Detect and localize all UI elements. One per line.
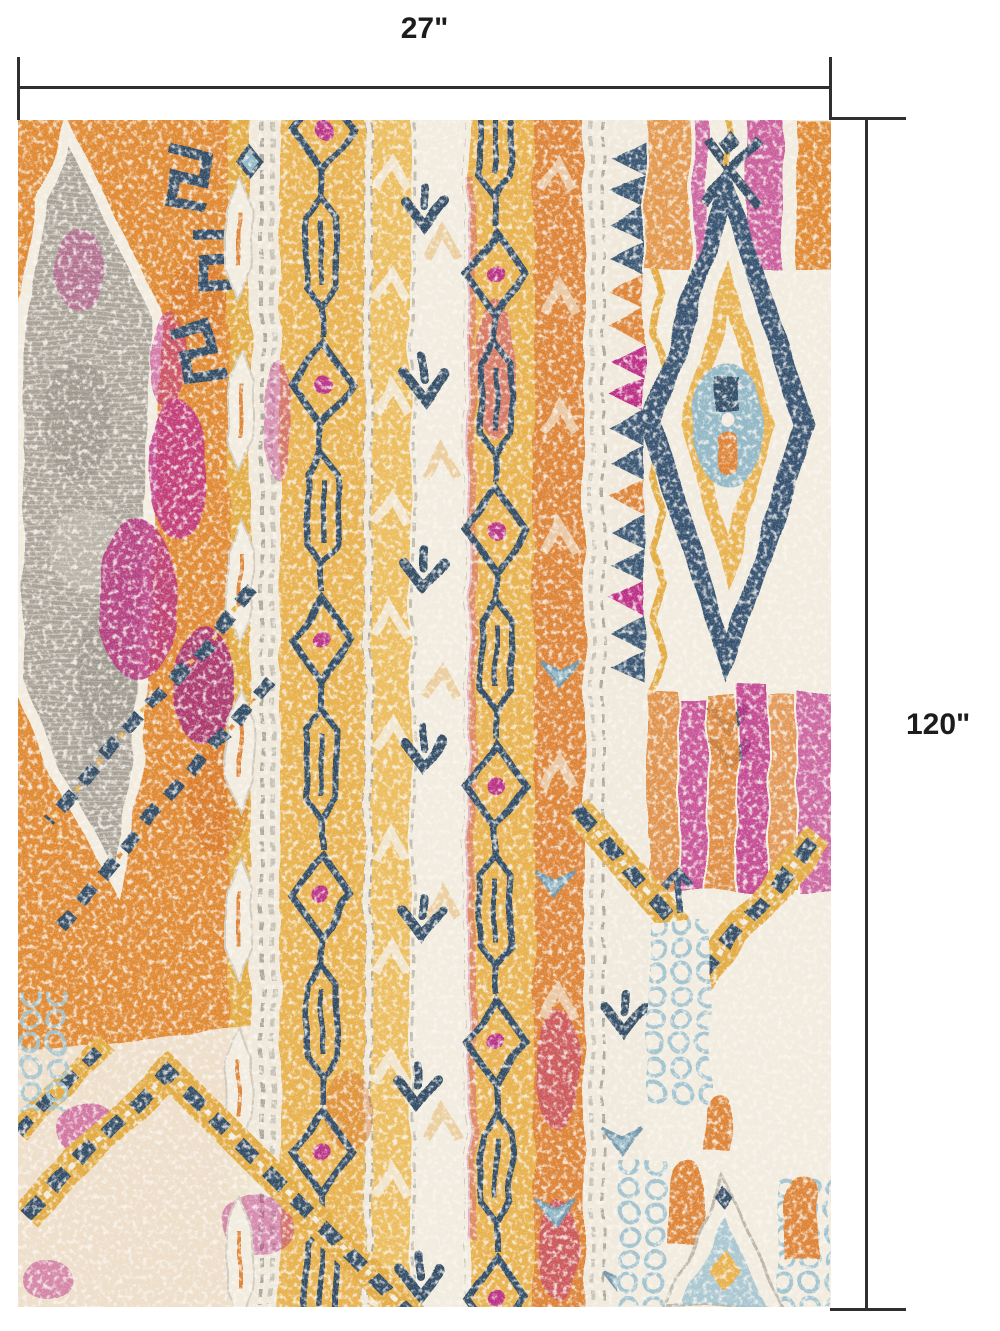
rug-graphic <box>18 120 831 1307</box>
width-dimension-label: 27" <box>18 12 831 46</box>
height-dimension-label: 120" <box>906 708 970 742</box>
width-dimension-tick-left <box>17 57 20 120</box>
height-dimension-tick-top <box>830 117 906 120</box>
rug-image <box>18 120 831 1307</box>
width-dimension-line <box>18 86 831 89</box>
height-dimension-tick-bottom <box>830 1308 906 1311</box>
width-dimension-tick-right <box>829 57 832 120</box>
height-dimension-line <box>865 117 868 1311</box>
product-dimension-diagram: 27" 120" <box>0 0 1000 1331</box>
